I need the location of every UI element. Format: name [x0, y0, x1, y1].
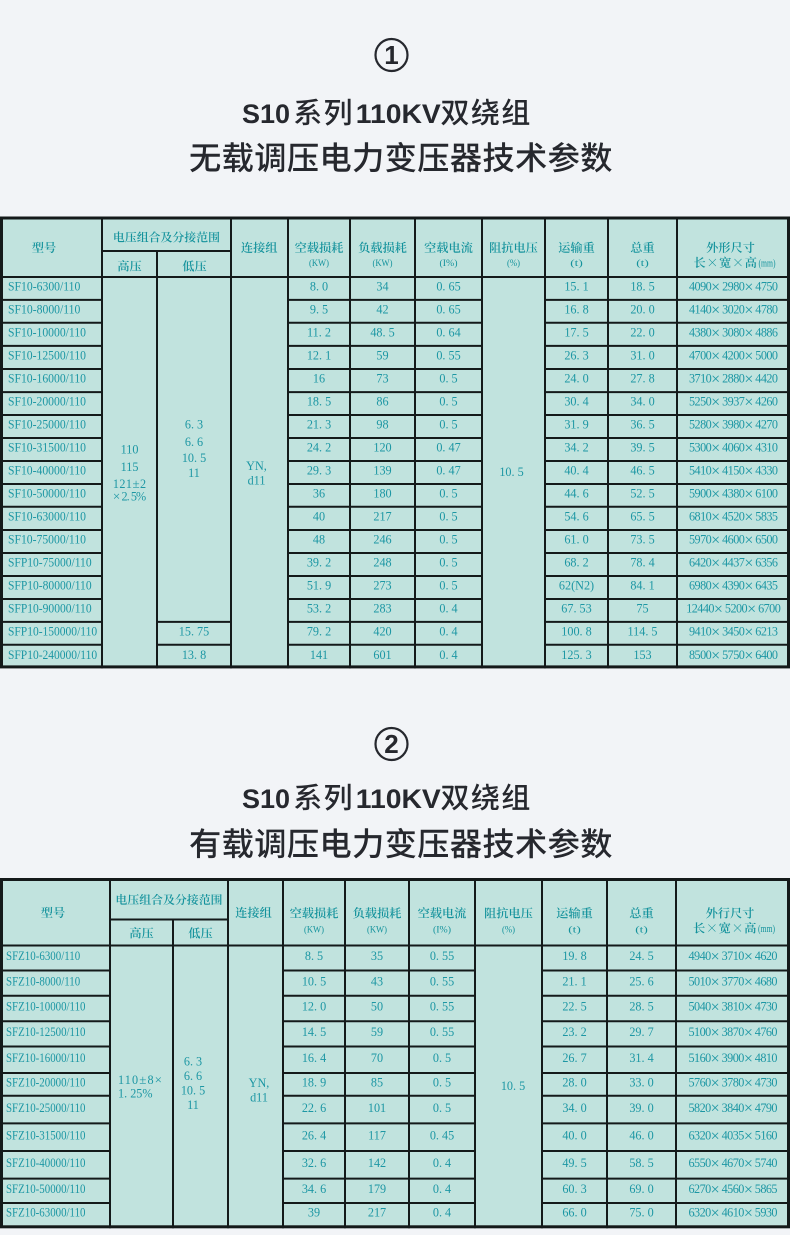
- svg-text:9410× 3450× 6213: 9410× 3450× 6213: [689, 624, 778, 641]
- svg-text:141: 141: [310, 648, 328, 662]
- svg-text:SFZ10-10000/110: SFZ10-10000/110: [6, 1000, 86, 1014]
- svg-text:SFP10-75000/110: SFP10-75000/110: [8, 556, 92, 570]
- svg-text:SFZ10-31500/110: SFZ10-31500/110: [6, 1128, 86, 1142]
- svg-text:(%): (%): [507, 258, 520, 269]
- svg-text:SFP10-150000/110: SFP10-150000/110: [8, 624, 97, 638]
- svg-text:59: 59: [376, 348, 388, 362]
- svg-text:0. 47: 0. 47: [436, 441, 460, 455]
- svg-text:31. 9: 31. 9: [564, 418, 588, 432]
- svg-text:110KV: 110KV: [356, 784, 441, 814]
- svg-text:SF10-40000/110: SF10-40000/110: [8, 464, 86, 478]
- svg-text:6320× 4035× 5160: 6320× 4035× 5160: [688, 1128, 777, 1145]
- svg-text:11: 11: [188, 466, 200, 480]
- svg-text:20. 0: 20. 0: [630, 302, 654, 316]
- svg-text:51. 9: 51. 9: [307, 579, 331, 593]
- svg-text:120: 120: [373, 441, 391, 455]
- svg-text:98: 98: [376, 418, 388, 432]
- svg-text:6270× 4560× 5865: 6270× 4560× 5865: [688, 1181, 777, 1198]
- svg-text:26. 4: 26. 4: [302, 1128, 326, 1142]
- svg-text:248: 248: [373, 556, 391, 570]
- svg-text:SFZ10-50000/110: SFZ10-50000/110: [6, 1182, 86, 1196]
- svg-text:28. 0: 28. 0: [562, 1076, 586, 1090]
- svg-text:SF10-50000/110: SF10-50000/110: [8, 486, 86, 500]
- svg-text:0. 4: 0. 4: [439, 624, 457, 638]
- svg-text:6420× 4437× 6356: 6420× 4437× 6356: [689, 555, 778, 572]
- svg-text:101: 101: [368, 1101, 386, 1115]
- svg-text:142: 142: [368, 1156, 386, 1170]
- svg-text:75. 0: 75. 0: [629, 1205, 653, 1219]
- svg-text:117: 117: [368, 1128, 386, 1142]
- svg-text:11: 11: [187, 1098, 199, 1112]
- svg-text:15. 1: 15. 1: [564, 279, 588, 293]
- svg-text:(mm): (mm): [759, 259, 776, 270]
- svg-text:67. 53: 67. 53: [561, 601, 591, 615]
- svg-text:32. 6: 32. 6: [302, 1156, 326, 1170]
- svg-text:43: 43: [371, 974, 383, 988]
- svg-text:48. 5: 48. 5: [370, 325, 394, 339]
- svg-text:0. 55: 0. 55: [430, 974, 454, 988]
- svg-text:179: 179: [368, 1182, 386, 1196]
- svg-text:8. 0: 8. 0: [310, 279, 328, 293]
- svg-text:6. 6: 6. 6: [185, 435, 203, 449]
- svg-text:5410× 4150× 4330: 5410× 4150× 4330: [689, 463, 778, 480]
- svg-text:24. 0: 24. 0: [564, 372, 588, 386]
- svg-text:273: 273: [373, 579, 391, 593]
- svg-text:0. 4: 0. 4: [433, 1156, 451, 1170]
- svg-text:(I%): (I%): [440, 258, 458, 269]
- svg-text:49. 5: 49. 5: [562, 1156, 586, 1170]
- svg-text:13. 8: 13. 8: [182, 648, 206, 662]
- svg-text:31. 0: 31. 0: [630, 348, 654, 362]
- svg-text:420: 420: [373, 624, 391, 638]
- svg-text:62(N2): 62(N2): [559, 579, 594, 593]
- svg-text:18. 9: 18. 9: [302, 1076, 326, 1090]
- svg-text:6. 3: 6. 3: [185, 418, 203, 432]
- svg-text:14. 5: 14. 5: [302, 1025, 326, 1039]
- svg-text:79. 2: 79. 2: [307, 624, 331, 638]
- svg-text:10. 5: 10. 5: [182, 451, 206, 465]
- svg-text:(KW): (KW): [309, 258, 329, 269]
- svg-text:5300× 4060× 4310: 5300× 4060× 4310: [689, 440, 778, 457]
- svg-text:69. 0: 69. 0: [629, 1182, 653, 1196]
- svg-text:SF10-25000/110: SF10-25000/110: [8, 418, 86, 432]
- svg-text:110±8×: 110±8×: [118, 1072, 162, 1087]
- svg-text:YN,: YN,: [246, 459, 267, 473]
- svg-text:SF10-10000/110: SF10-10000/110: [8, 325, 86, 339]
- svg-text:18. 5: 18. 5: [307, 395, 331, 409]
- svg-text:10. 5: 10. 5: [181, 1084, 205, 1098]
- svg-text:110: 110: [121, 443, 139, 457]
- svg-text:46. 0: 46. 0: [629, 1128, 653, 1142]
- svg-text:246: 246: [373, 533, 391, 547]
- svg-text:SF10-12500/110: SF10-12500/110: [8, 348, 86, 362]
- svg-text:0. 5: 0. 5: [439, 395, 457, 409]
- svg-text:26. 7: 26. 7: [562, 1051, 586, 1065]
- svg-text:YN,: YN,: [249, 1076, 270, 1090]
- svg-text:100. 8: 100. 8: [561, 624, 591, 638]
- svg-text:3710× 2880× 4420: 3710× 2880× 4420: [689, 371, 778, 388]
- svg-text:0. 55: 0. 55: [436, 348, 460, 362]
- svg-text:139: 139: [373, 464, 391, 478]
- svg-text:12. 1: 12. 1: [307, 348, 331, 362]
- svg-text:48: 48: [313, 533, 325, 547]
- svg-text:10. 5: 10. 5: [499, 465, 523, 479]
- svg-text:31. 4: 31. 4: [629, 1051, 653, 1065]
- svg-text:65. 5: 65. 5: [630, 509, 654, 523]
- svg-text:86: 86: [376, 395, 388, 409]
- svg-text:0. 4: 0. 4: [433, 1205, 451, 1219]
- svg-text:0. 65: 0. 65: [436, 279, 460, 293]
- svg-text:5160× 3900× 4810: 5160× 3900× 4810: [688, 1050, 777, 1067]
- svg-text:601: 601: [373, 648, 391, 662]
- svg-text:SFZ10-16000/110: SFZ10-16000/110: [6, 1051, 86, 1065]
- svg-text:0. 5: 0. 5: [439, 509, 457, 523]
- svg-text:5970× 4600× 6500: 5970× 4600× 6500: [689, 532, 778, 549]
- svg-text:39: 39: [308, 1205, 320, 1219]
- svg-text:6320× 4610× 5930: 6320× 4610× 5930: [688, 1205, 777, 1222]
- svg-text:16. 4: 16. 4: [302, 1051, 326, 1065]
- svg-text:42: 42: [376, 302, 388, 316]
- svg-text:0. 5: 0. 5: [433, 1051, 451, 1065]
- svg-text:SF10-20000/110: SF10-20000/110: [8, 395, 86, 409]
- svg-text:11. 2: 11. 2: [307, 325, 331, 339]
- svg-text:12. 0: 12. 0: [302, 1000, 326, 1014]
- svg-text:68. 2: 68. 2: [564, 556, 588, 570]
- svg-text:d11: d11: [250, 1091, 268, 1105]
- svg-text:21. 1: 21. 1: [562, 974, 586, 988]
- svg-text:153: 153: [633, 648, 651, 662]
- svg-text:110KV: 110KV: [356, 99, 441, 129]
- svg-text:70: 70: [371, 1051, 383, 1065]
- svg-text:0. 4: 0. 4: [439, 648, 457, 662]
- svg-text:34. 2: 34. 2: [564, 441, 588, 455]
- svg-text:5040× 3810× 4730: 5040× 3810× 4730: [688, 999, 777, 1016]
- svg-text:SF10-16000/110: SF10-16000/110: [8, 372, 86, 386]
- svg-text:24. 2: 24. 2: [307, 441, 331, 455]
- svg-text:SFZ10-40000/110: SFZ10-40000/110: [6, 1156, 86, 1170]
- svg-text:0. 55: 0. 55: [430, 949, 454, 963]
- svg-text:22. 6: 22. 6: [302, 1101, 326, 1115]
- svg-text:26. 3: 26. 3: [564, 348, 588, 362]
- svg-text:0. 5: 0. 5: [439, 418, 457, 432]
- svg-text:73: 73: [376, 372, 388, 386]
- svg-text:29. 7: 29. 7: [629, 1025, 653, 1039]
- svg-text:34. 0: 34. 0: [630, 395, 654, 409]
- svg-text:34: 34: [376, 279, 388, 293]
- svg-text:34. 0: 34. 0: [562, 1101, 586, 1115]
- svg-text:0. 5: 0. 5: [439, 372, 457, 386]
- svg-text:36. 5: 36. 5: [630, 418, 654, 432]
- svg-text:4940× 3710× 4620: 4940× 3710× 4620: [688, 949, 777, 966]
- svg-text:33. 0: 33. 0: [629, 1076, 653, 1090]
- svg-text:4090× 2980× 4750: 4090× 2980× 4750: [689, 279, 778, 296]
- svg-text:15. 75: 15. 75: [179, 624, 209, 638]
- svg-text:44. 6: 44. 6: [564, 486, 588, 500]
- svg-text:(mm): (mm): [758, 924, 775, 935]
- svg-text:125. 3: 125. 3: [561, 648, 591, 662]
- svg-text:4140× 3020× 4780: 4140× 3020× 4780: [689, 302, 778, 319]
- svg-text:5820× 3840× 4790: 5820× 3840× 4790: [688, 1100, 777, 1117]
- svg-text:34. 6: 34. 6: [302, 1182, 326, 1196]
- svg-text:0. 4: 0. 4: [433, 1182, 451, 1196]
- svg-text:40: 40: [313, 509, 325, 523]
- svg-text:6550× 4670× 5740: 6550× 4670× 5740: [688, 1155, 777, 1172]
- svg-text:(t): (t): [568, 925, 581, 936]
- svg-text:52. 5: 52. 5: [630, 486, 654, 500]
- svg-text:16: 16: [313, 372, 325, 386]
- svg-text:0. 4: 0. 4: [439, 601, 457, 615]
- svg-text:(%): (%): [502, 925, 515, 936]
- svg-text:84. 1: 84. 1: [630, 579, 654, 593]
- svg-text:35: 35: [371, 949, 383, 963]
- svg-text:0. 5: 0. 5: [439, 486, 457, 500]
- svg-text:(I%): (I%): [433, 925, 451, 936]
- svg-text:23. 2: 23. 2: [562, 1025, 586, 1039]
- svg-text:75: 75: [636, 601, 648, 615]
- svg-text:17. 5: 17. 5: [564, 325, 588, 339]
- svg-text:5250× 3937× 4260: 5250× 3937× 4260: [689, 394, 778, 411]
- svg-text:19. 8: 19. 8: [562, 949, 586, 963]
- svg-text:12440× 5200× 6700: 12440× 5200× 6700: [686, 601, 781, 618]
- svg-text:73. 5: 73. 5: [630, 533, 654, 547]
- svg-text:25. 6: 25. 6: [629, 974, 653, 988]
- svg-text:21. 3: 21. 3: [307, 418, 331, 432]
- svg-text:0. 64: 0. 64: [436, 325, 460, 339]
- svg-text:SFP10-90000/110: SFP10-90000/110: [8, 601, 92, 615]
- svg-text:6. 6: 6. 6: [184, 1069, 202, 1083]
- svg-text:SFZ10-6300/110: SFZ10-6300/110: [6, 949, 80, 963]
- svg-text:6. 3: 6. 3: [184, 1055, 202, 1069]
- svg-text:66. 0: 66. 0: [562, 1205, 586, 1219]
- svg-text:0. 55: 0. 55: [430, 1025, 454, 1039]
- svg-text:53. 2: 53. 2: [307, 601, 331, 615]
- svg-text:5900× 4380× 6100: 5900× 4380× 6100: [689, 486, 778, 503]
- svg-text:S10: S10: [242, 99, 290, 129]
- svg-text:0. 5: 0. 5: [439, 579, 457, 593]
- svg-text:217: 217: [373, 509, 391, 523]
- svg-text:SF10-31500/110: SF10-31500/110: [8, 441, 86, 455]
- svg-text:4700× 4200× 5000: 4700× 4200× 5000: [689, 348, 778, 365]
- svg-text:10. 5: 10. 5: [302, 974, 326, 988]
- svg-text:6980× 4390× 6435: 6980× 4390× 6435: [689, 578, 778, 595]
- svg-text:(KW): (KW): [304, 925, 324, 936]
- svg-text:29. 3: 29. 3: [307, 464, 331, 478]
- svg-text:SF10-63000/110: SF10-63000/110: [8, 509, 86, 523]
- svg-text:180: 180: [373, 486, 391, 500]
- svg-text:16. 8: 16. 8: [564, 302, 588, 316]
- svg-text:0. 45: 0. 45: [430, 1128, 454, 1142]
- svg-text:(t): (t): [635, 925, 648, 936]
- svg-text:0. 5: 0. 5: [433, 1101, 451, 1115]
- svg-text:8500× 5750× 6400: 8500× 5750× 6400: [689, 648, 778, 665]
- svg-text:5760× 3780× 4730: 5760× 3780× 4730: [688, 1075, 777, 1092]
- svg-text:× 2. 5%: × 2. 5%: [113, 489, 146, 504]
- svg-text:115: 115: [121, 460, 139, 474]
- svg-text:d11: d11: [248, 474, 266, 488]
- svg-text:36: 36: [313, 486, 325, 500]
- svg-text:60. 3: 60. 3: [562, 1182, 586, 1196]
- svg-text:SFZ10-12500/110: SFZ10-12500/110: [6, 1025, 86, 1039]
- svg-text:0. 65: 0. 65: [436, 302, 460, 316]
- svg-text:58. 5: 58. 5: [629, 1156, 653, 1170]
- svg-text:0. 5: 0. 5: [439, 533, 457, 547]
- svg-text:9. 5: 9. 5: [310, 302, 328, 316]
- svg-text:5280× 3980× 4270: 5280× 3980× 4270: [689, 417, 778, 434]
- svg-text:40. 4: 40. 4: [564, 464, 588, 478]
- svg-text:SFZ10-8000/110: SFZ10-8000/110: [6, 974, 80, 988]
- svg-text:(t): (t): [570, 258, 583, 269]
- svg-text:114. 5: 114. 5: [627, 624, 657, 638]
- svg-text:46. 5: 46. 5: [630, 464, 654, 478]
- svg-text:61. 0: 61. 0: [564, 533, 588, 547]
- svg-text:22. 5: 22. 5: [562, 1000, 586, 1014]
- svg-text:8. 5: 8. 5: [305, 949, 323, 963]
- svg-text:SF10-8000/110: SF10-8000/110: [8, 302, 80, 316]
- svg-text:24. 5: 24. 5: [629, 949, 653, 963]
- svg-text:1: 1: [384, 40, 398, 70]
- svg-text:22. 0: 22. 0: [630, 325, 654, 339]
- svg-text:85: 85: [371, 1076, 383, 1090]
- svg-text:10. 5: 10. 5: [501, 1079, 525, 1093]
- svg-text:217: 217: [368, 1205, 386, 1219]
- svg-text:SFZ10-63000/110: SFZ10-63000/110: [6, 1205, 86, 1219]
- svg-text:28. 5: 28. 5: [629, 1000, 653, 1014]
- svg-text:0. 47: 0. 47: [436, 464, 460, 478]
- svg-text:59: 59: [371, 1025, 383, 1039]
- svg-text:40. 0: 40. 0: [562, 1128, 586, 1142]
- svg-text:78. 4: 78. 4: [630, 556, 654, 570]
- svg-text:39. 2: 39. 2: [307, 556, 331, 570]
- svg-text:0. 55: 0. 55: [430, 1000, 454, 1014]
- svg-text:283: 283: [373, 601, 391, 615]
- svg-text:5100× 3870× 4760: 5100× 3870× 4760: [688, 1024, 777, 1041]
- svg-text:5010× 3770× 4680: 5010× 3770× 4680: [688, 974, 777, 991]
- svg-text:54. 6: 54. 6: [564, 509, 588, 523]
- svg-text:(t): (t): [636, 258, 649, 269]
- svg-text:4380× 3080× 4886: 4380× 3080× 4886: [689, 325, 778, 342]
- svg-text:2: 2: [384, 729, 398, 759]
- svg-text:SFP10-80000/110: SFP10-80000/110: [8, 579, 92, 593]
- svg-text:0. 5: 0. 5: [433, 1076, 451, 1090]
- svg-text:SF10-6300/110: SF10-6300/110: [8, 279, 80, 293]
- svg-text:39. 0: 39. 0: [629, 1101, 653, 1115]
- svg-text:0. 5: 0. 5: [439, 556, 457, 570]
- svg-text:SFZ10-25000/110: SFZ10-25000/110: [6, 1101, 86, 1115]
- svg-text:18. 5: 18. 5: [630, 279, 654, 293]
- svg-text:S10: S10: [242, 784, 290, 814]
- svg-text:SF10-75000/110: SF10-75000/110: [8, 533, 86, 547]
- svg-text:39. 5: 39. 5: [630, 441, 654, 455]
- svg-text:27. 8: 27. 8: [630, 372, 654, 386]
- svg-text:SFZ10-20000/110: SFZ10-20000/110: [6, 1076, 86, 1090]
- svg-text:(KW): (KW): [373, 258, 393, 269]
- svg-text:30. 4: 30. 4: [564, 395, 588, 409]
- svg-text:(KW): (KW): [367, 925, 387, 936]
- svg-text:50: 50: [371, 1000, 383, 1014]
- svg-text:1. 25%: 1. 25%: [118, 1087, 153, 1101]
- svg-text:6810× 4520× 5835: 6810× 4520× 5835: [689, 509, 778, 526]
- svg-text:SFP10-240000/110: SFP10-240000/110: [8, 648, 97, 662]
